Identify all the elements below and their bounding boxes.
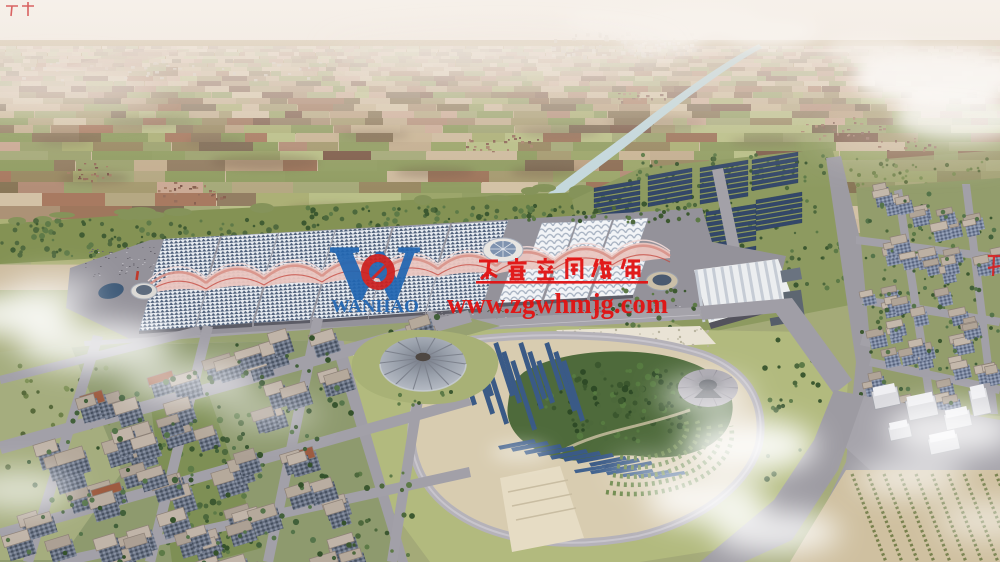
svg-text:www.zgwhmjg.com: www.zgwhmjg.com [447,288,668,320]
svg-text:WANHAO: WANHAO [331,296,419,316]
